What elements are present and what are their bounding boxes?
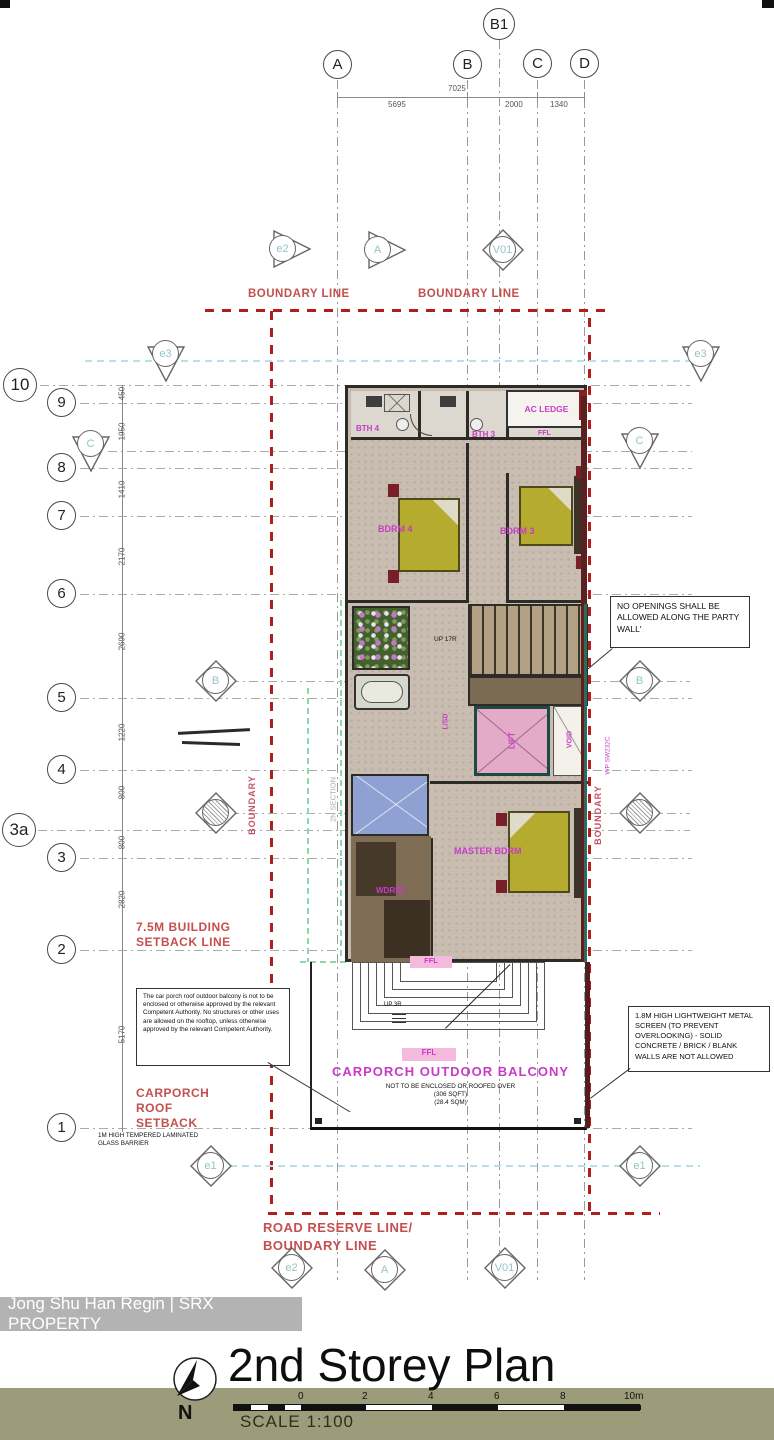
boundary-vertical-label: BOUNDARY [593, 775, 603, 855]
building-setback-label: 7.5M BUILDING SETBACK LINE [136, 920, 254, 950]
room-label-balcony: CARPORCH OUTDOOR BALCONY [312, 1064, 589, 1079]
marker-label: A [381, 1264, 388, 1276]
boundary-line-label: BOUNDARY LINE [248, 288, 350, 300]
marker-label: e1 [204, 1160, 216, 1172]
balcony-note-line: NOT TO BE ENCLOSED OR ROOFED OVER [342, 1083, 559, 1091]
section-marker-v-bottom: V01 [483, 1246, 527, 1290]
grid-label: 3 [57, 849, 65, 866]
dimension-value: 2690 [118, 622, 127, 662]
watermark-text: Jong Shu Han Regin | SRX PROPERTY [8, 1294, 302, 1334]
wall [506, 473, 509, 603]
dimension-value: 2000 [505, 100, 523, 109]
sink-fixture [366, 396, 382, 407]
ffl-tag: FFL [410, 956, 452, 968]
scale-label: SCALE 1:100 [240, 1412, 354, 1432]
service-label: WP SW232C [605, 726, 612, 786]
scale-tick: 0 [298, 1391, 304, 1402]
boundary-line-top [205, 309, 612, 312]
road-reserve-label: ROAD RESERVE LINE/ [263, 1220, 413, 1235]
bed-bdrm4 [398, 498, 460, 572]
marker-label: V01 [493, 244, 513, 256]
leader-line [590, 1068, 631, 1099]
grid-bubble-9: 9 [47, 388, 76, 417]
stair-up-label: UP 3R [384, 1002, 402, 1008]
marker-label: B [212, 675, 219, 687]
grid-label: A [332, 56, 342, 73]
grid-bubble-d: D [570, 49, 599, 78]
marker-label: e1 [633, 1160, 645, 1172]
room-label-bdrm4: BDRM 4 [378, 524, 413, 534]
section-marker-a-top: A [363, 228, 407, 272]
grid-bubble-b: B [453, 50, 482, 79]
marker-label: e2 [285, 1262, 297, 1274]
detail-marker-right [618, 791, 662, 835]
grid-bubble-6: 6 [47, 579, 76, 608]
illegible-annotation [182, 741, 240, 746]
ac-ledge: AC LEDGE [506, 390, 587, 428]
elevation-marker-e1-left: e1 [189, 1144, 233, 1188]
corner-mark [762, 0, 774, 8]
dimension-value: 5170 [118, 1015, 127, 1055]
grid-bubble-b1: B1 [483, 8, 515, 40]
dimension-value: 1410 [118, 470, 127, 510]
grid-label: 7 [57, 507, 65, 524]
boundary-line-label: BOUNDARY LINE [418, 288, 520, 300]
ffl-label: FFL [538, 430, 551, 437]
dimension-value: 2820 [118, 880, 127, 920]
north-label: N [178, 1402, 192, 1425]
boundary-vertical-label: BOUNDARY [247, 765, 257, 845]
grid-label: B1 [490, 16, 508, 33]
room-label-lift: LIFT [508, 721, 517, 761]
screen-note-box: 1.8M HIGH LIGHTWEIGHT METAL SCREEN (TO P… [628, 1006, 770, 1072]
grid-label: 8 [57, 459, 65, 476]
party-wall-note-box: NO OPENINGS SHALL BE ALLOWED ALONG THE P… [610, 596, 750, 648]
section-line-label: 2N SECTION [329, 765, 338, 835]
ffl-tag: FFL [402, 1048, 456, 1061]
marker-label: V01 [495, 1262, 515, 1274]
room-label-ac-ledge: AC LEDGE [525, 404, 569, 414]
grid-bubble-a: A [323, 50, 352, 79]
room-label-bth4: BTH 4 [356, 424, 379, 433]
dimension-value: 5695 [388, 100, 406, 109]
toilet-fixture [396, 418, 409, 431]
furniture [388, 570, 399, 583]
section-marker-a-bottom: A [363, 1248, 407, 1292]
building-floor-plan: BTH 4 BTH 3 AC LEDGE BDRM 4 BDRM 3 UP 17… [345, 385, 587, 962]
sink-fixture [440, 396, 456, 407]
marker-label: B [636, 675, 643, 687]
grid-bubble-5: 5 [47, 683, 76, 712]
dimension-tick [584, 92, 585, 102]
furniture [388, 484, 399, 497]
dimension-tick [537, 92, 538, 102]
bathtub-fixture [354, 674, 410, 710]
boundary-line-left [270, 311, 273, 1212]
balcony-note-line: (28.4 SQM) [342, 1099, 559, 1107]
staircase [468, 604, 588, 676]
grid-label: 9 [57, 394, 65, 411]
marker-label: A [374, 244, 381, 256]
elevation-marker-e2-bottom: e2 [270, 1246, 314, 1290]
grid-bubble-3a: 3a [2, 813, 36, 847]
wall [466, 391, 469, 440]
detail-marker-left [194, 791, 238, 835]
elevation-marker-e2: e2 [268, 227, 312, 271]
floor-plan-canvas: 7025 5695 2000 1340 450 1950 1410 2170 2… [0, 0, 774, 1440]
marker-label: e2 [276, 243, 288, 255]
room-label-bdrm3: BDRM 3 [500, 526, 535, 536]
grid-label: D [579, 55, 590, 72]
grid-label: 2 [57, 941, 65, 958]
balcony-screen-wall [586, 962, 590, 1128]
wall [466, 443, 469, 603]
section-marker-b-left: B [194, 659, 238, 703]
party-wall-screen [584, 604, 587, 962]
grid-label: 3a [10, 820, 29, 840]
marker-block [315, 1118, 322, 1124]
carporch-outdoor-balcony: UP 3R FFL FFL CARPORCH OUTDOOR BALCONY N… [310, 962, 587, 1130]
room-label-bth3: BTH 3 [472, 430, 495, 439]
room-label-master: MASTER BDRM [454, 846, 522, 856]
elevation-marker-e1-right: e1 [618, 1144, 662, 1188]
marker-label: e3 [694, 348, 706, 360]
marker-label: C [636, 435, 644, 447]
scale-tick: 2 [362, 1391, 368, 1402]
section-marker-c-right: C [618, 426, 662, 470]
plan-title: 2nd Storey Plan [228, 1338, 555, 1392]
corner-mark [0, 0, 10, 8]
balcony-note: NOT TO BE ENCLOSED OR ROOFED OVER (306 S… [342, 1083, 559, 1108]
dimension-value: 2170 [118, 537, 127, 577]
grid-bubble-3: 3 [47, 843, 76, 872]
carporch-setback-label: CARPORCH ROOF SETBACK [136, 1086, 236, 1131]
grid-label: 5 [57, 689, 65, 706]
setback-dash [340, 600, 342, 960]
dimension-value: 1950 [118, 412, 127, 452]
grid-label: 4 [57, 761, 65, 778]
grid-bubble-10: 10 [3, 368, 37, 402]
illegible-annotation [178, 728, 250, 735]
watermark: Jong Shu Han Regin | SRX PROPERTY [0, 1297, 302, 1331]
dimension-value: 450 [118, 374, 127, 414]
section-marker-v-top: V01 [481, 228, 525, 272]
section-marker-b-right: B [618, 659, 662, 703]
bed-bdrm3 [519, 486, 573, 546]
section-marker-c-left: C [69, 429, 113, 473]
grid-label: 1 [57, 1119, 65, 1136]
dimension-tick [337, 92, 338, 102]
wall [430, 781, 588, 784]
room-label-wardrobe: WDRBE [376, 886, 406, 895]
stair-landing [468, 676, 588, 706]
planter-box [352, 606, 410, 670]
dimension-value: 7025 [448, 84, 466, 93]
scale-bar: 0 2 4 6 8 10m [233, 1404, 640, 1411]
marker-block [574, 1118, 581, 1124]
furniture [496, 880, 507, 893]
balcony-note-line: (306 SQFT) [342, 1091, 559, 1099]
stair-up-label: UP 17R [434, 636, 457, 643]
grid-label: C [532, 55, 543, 72]
scale-tick: 6 [494, 1391, 500, 1402]
shower-fixture [384, 394, 410, 412]
room-label-void: VOID [567, 720, 574, 760]
wall [348, 600, 468, 603]
dimension-line [337, 97, 584, 98]
dimension-value: 800 [118, 773, 127, 813]
dimension-value: 800 [118, 823, 127, 863]
scale-tick: 10m [624, 1391, 643, 1402]
marker-label: e3 [159, 348, 171, 360]
grid-bubble-7: 7 [47, 501, 76, 530]
elevation-marker-e3-right: e3 [679, 339, 723, 383]
grid-bubble-1: 1 [47, 1113, 76, 1142]
furniture [496, 813, 507, 826]
grid-bubble-c: C [523, 49, 552, 78]
dimension-value: 1220 [118, 713, 127, 753]
grid-label: 6 [57, 585, 65, 602]
dimension-value: 1340 [550, 100, 568, 109]
grid-bubble-2: 2 [47, 935, 76, 964]
marker-label: C [87, 438, 95, 450]
room-label-hall: L/SD [443, 702, 450, 742]
scale-tick: 4 [428, 1391, 434, 1402]
page-bottom-band [0, 1388, 774, 1440]
grid-label: 10 [11, 375, 30, 395]
dimension-tick [467, 92, 468, 102]
wardrobe-unit [384, 900, 430, 958]
wet-area [351, 774, 429, 836]
elevation-marker-e3-left: e3 [144, 339, 188, 383]
wall [506, 600, 587, 603]
carporch-note-box: The car porch roof outdoor balcony is no… [136, 988, 290, 1066]
scale-tick: 8 [560, 1391, 566, 1402]
setback-dash [307, 688, 309, 962]
grid-label: B [462, 56, 472, 73]
grid-bubble-4: 4 [47, 755, 76, 784]
boundary-line-bottom [268, 1212, 660, 1215]
